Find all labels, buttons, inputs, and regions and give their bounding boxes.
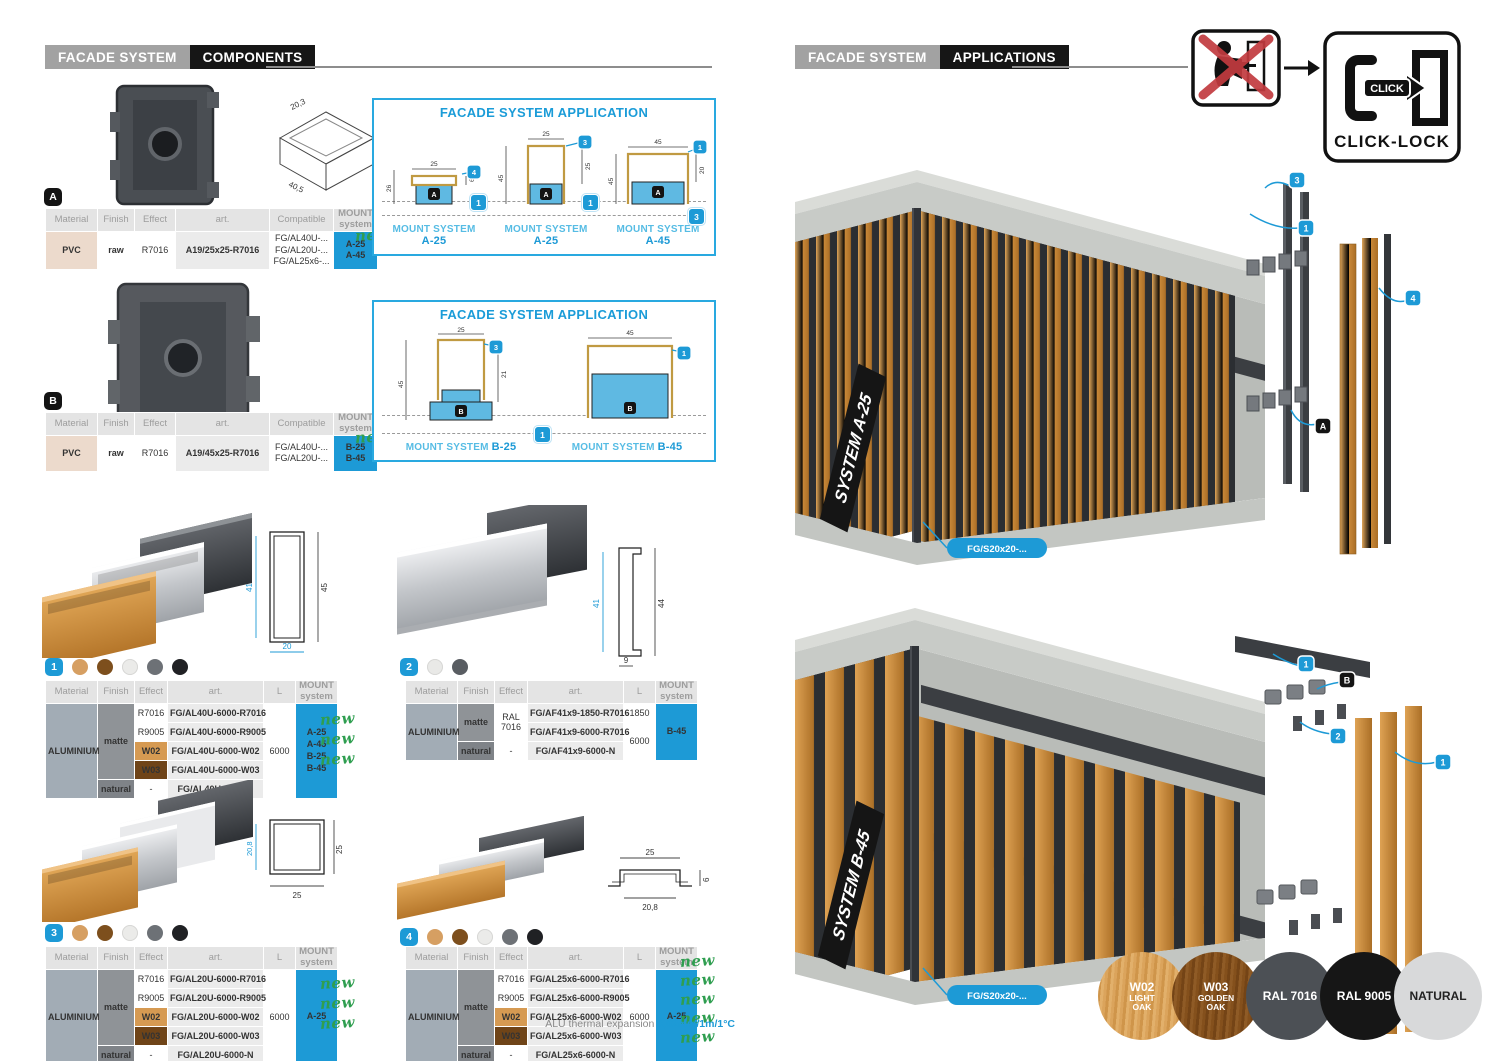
svg-text:FG/S20x20-...: FG/S20x20-... [967,544,1027,555]
profile-2-spec-table: MaterialFinishEffectart.LMOUNTsystem ALU… [405,680,698,761]
catalog-page: FACADE SYSTEM COMPONENTS 20,3 40,5 15,1 … [0,0,1500,1061]
svg-text:B: B [627,406,632,413]
svg-text:25: 25 [457,327,465,334]
render-system-a25: SYSTEM A-25 3 1 4 A FG/S20 [795,148,1495,580]
svg-text:1: 1 [698,143,702,152]
svg-text:1: 1 [1303,660,1308,670]
svg-text:3: 3 [583,138,587,147]
profile-3-drawing: 20,8 25 25 [240,808,345,910]
svg-text:25: 25 [335,845,344,854]
brand-label: FACADE SYSTEM [45,45,190,69]
svg-text:25: 25 [293,891,302,900]
component-a-badge: A [44,188,62,206]
svg-text:45: 45 [320,583,329,592]
svg-text:6: 6 [702,877,711,882]
application-box-b: FACADE SYSTEM APPLICATION B 45 25 21 3 B… [372,300,716,462]
section-diagram-a25-high: A 45 25 25 3 [494,122,598,206]
art-cell: A19/25x25-R7016 [176,231,270,269]
callout-badge: 1 [470,194,487,211]
material-cell: PVC [46,231,98,269]
component-a-spec-table: MaterialFinish Effectart. Compatible MOU… [45,208,378,270]
svg-text:9: 9 [624,656,629,665]
section-diagram-a25-low: A 26 25 6 4 [382,122,486,206]
svg-text:26: 26 [386,184,393,192]
svg-text:20: 20 [283,642,292,651]
svg-text:CLICK: CLICK [1370,83,1404,95]
svg-text:B: B [1344,676,1351,686]
color-dot-silver [427,659,443,675]
color-dot-golden-oak [97,659,113,675]
svg-text:A: A [543,192,548,199]
profile-4-colors: 4 [400,928,543,946]
svg-text:44: 44 [657,599,666,608]
profile-number-badge: 1 [45,658,63,676]
svg-text:25: 25 [646,848,655,857]
section-diagram-b45: B 45 1 [552,326,702,422]
svg-text:FG/S20x20-...: FG/S20x20-... [967,991,1027,1002]
profile-2-drawing: 41 44 9 [585,532,670,674]
profile-4-spec-table: MaterialFinishEffectart.LMOUNTsystem ALU… [405,946,698,1061]
svg-text:20,3: 20,3 [289,97,307,112]
exploded-slats [1340,234,1391,554]
application-box-a: FACADE SYSTEM APPLICATION A 26 25 6 4 A … [372,98,716,256]
app-box-title: FACADE SYSTEM APPLICATION [374,105,714,120]
color-dot-light-oak [72,659,88,675]
svg-text:4: 4 [1410,294,1415,304]
svg-text:2: 2 [1335,732,1340,742]
wall-dashed-line [382,215,706,216]
no-screws-icon [1190,28,1282,108]
svg-text:25: 25 [430,161,438,168]
svg-text:25: 25 [585,162,592,170]
svg-text:25: 25 [542,131,550,138]
svg-text:B: B [458,409,463,416]
svg-text:A: A [431,192,436,199]
profile-2-photo [395,505,590,640]
mounting-clips [1257,680,1346,935]
component-b-spec-table: MaterialFinishEffect art.Compatible MOUN… [45,412,378,472]
svg-text:45: 45 [626,330,634,337]
svg-text:40,5: 40,5 [287,180,305,195]
svg-text:41: 41 [592,599,601,608]
svg-text:21: 21 [501,370,508,378]
color-dot-grey [147,659,163,675]
svg-text:1: 1 [1440,758,1445,768]
arrow-icon [1284,58,1320,78]
profile-1-drawing: 41 45 20 [240,522,335,658]
svg-text:20,8: 20,8 [642,903,658,912]
color-swatch-row: W02LIGHT OAK W03GOLDEN OAK RAL 7016 RAL … [1098,952,1482,1040]
profile-3-colors: 3 [45,924,188,942]
svg-text:3: 3 [1294,176,1299,186]
brand-label: FACADE SYSTEM [795,45,940,69]
svg-text:45: 45 [608,177,615,185]
svg-text:45: 45 [398,380,405,388]
svg-text:3: 3 [494,343,498,352]
section-diagram-b25: B 45 25 21 3 [386,326,536,422]
svg-text:1: 1 [1303,224,1308,234]
header-rule [266,66,712,68]
profile-3-photo [40,780,255,922]
svg-text:45: 45 [654,139,662,146]
swatch-natural: NATURAL [1394,952,1482,1040]
profile-2-colors: 2 [400,658,468,676]
svg-text:1: 1 [682,349,686,358]
svg-text:A: A [1320,422,1327,432]
callout-badge: 1 [534,426,551,443]
click-lock-icon: CLICK CLICK-LOCK [1322,30,1462,164]
color-dot-dark-grey [452,659,468,675]
thermal-expansion-note: ALU thermal expansion 0,02mm/1m/1°C [520,1018,735,1030]
section-diagram-a45: A 45 45 20 1 [606,122,710,206]
header-rule [1012,66,1188,68]
svg-text:20: 20 [699,166,706,174]
color-dot-white [122,659,138,675]
color-dot-black [172,659,188,675]
svg-text:41: 41 [245,583,254,592]
callout-badge: 3 [688,208,705,225]
profile-4-photo [395,816,590,928]
component-a-photo [55,82,260,210]
svg-text:A: A [655,190,660,197]
component-b-badge: B [44,392,62,410]
profile-4-drawing: 25 20,8 6 [588,842,718,920]
svg-text:20,8: 20,8 [245,841,254,856]
profile-1-photo [40,502,255,658]
callout-badge: 1 [582,194,599,211]
svg-text:45: 45 [498,174,505,182]
profile-1-colors: 1 [45,658,188,676]
profile-3-spec-table: MaterialFinishEffectart.LMOUNTsystem ALU… [45,946,338,1061]
